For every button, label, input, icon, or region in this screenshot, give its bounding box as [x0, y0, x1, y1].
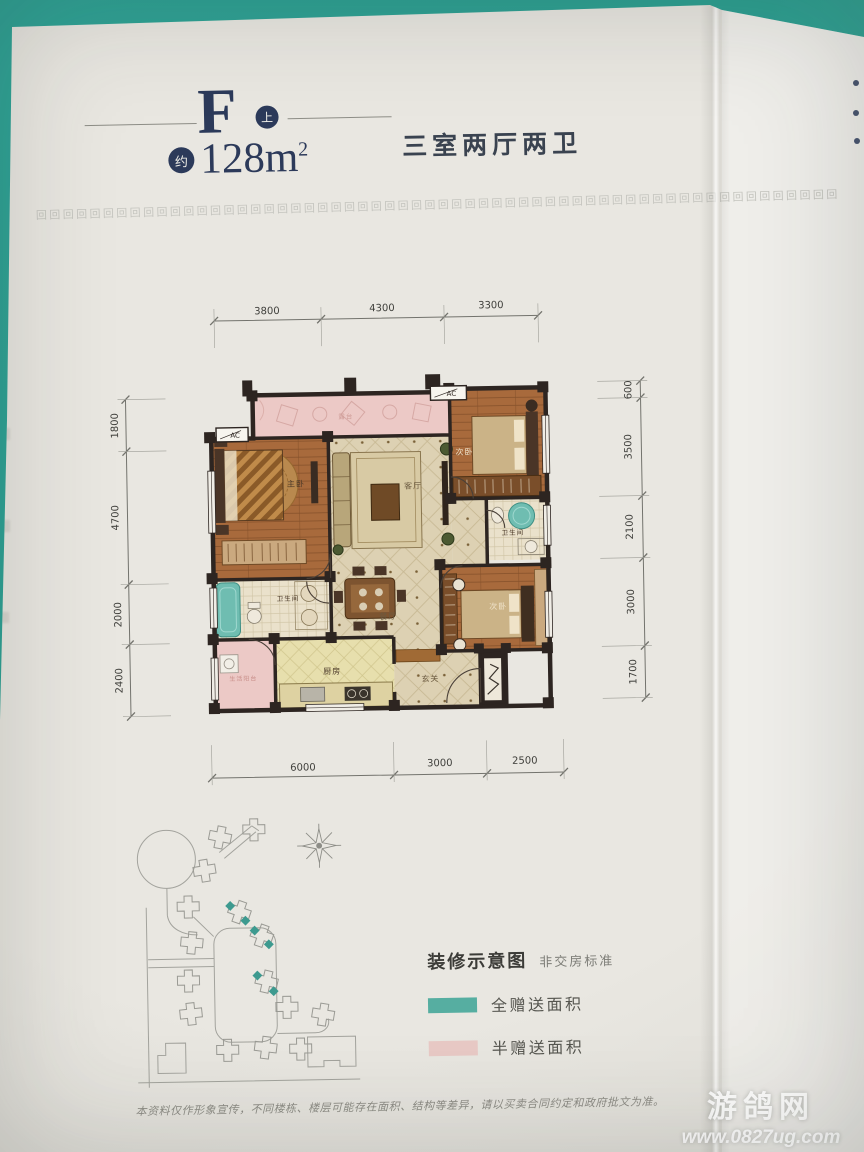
- ac-label-left: AC: [230, 432, 240, 440]
- bathtub-left: [216, 583, 241, 637]
- dim-right-3: 2100: [625, 514, 636, 540]
- disclaimer-text: 本资料仅作形象宣传，不同楼栋、楼层可能存在面积、结构等差异，请以买卖合同约定和政…: [110, 1092, 690, 1119]
- bedroom2-wardrobe: [453, 475, 541, 497]
- washer: [220, 655, 238, 673]
- floor-plan: 3800 4300 3300 6000 3000 2500 1800 4700 …: [96, 277, 685, 807]
- dim-left-1: 1800: [110, 413, 121, 439]
- unit-title-block: F 上 约 128m2 三室两厅两卫: [79, 79, 621, 199]
- dim-right-2: 3500: [623, 434, 634, 460]
- utility-balcony-area: [215, 639, 276, 711]
- page-fold: [700, 0, 730, 1152]
- area-superscript: 2: [298, 138, 308, 160]
- toilet-left: [247, 609, 261, 623]
- dim-top-3: 3300: [478, 300, 504, 311]
- edge-dot: [853, 110, 859, 116]
- dim-top-2: 4300: [369, 303, 395, 314]
- site-buildings: [175, 817, 337, 1062]
- hallway-floor: [451, 498, 487, 566]
- label-dining: 餐厅: [379, 612, 397, 621]
- coffee-table: [371, 484, 400, 520]
- label-bed-bottom-right: 次卧: [489, 601, 507, 611]
- dim-right-1: 600: [623, 380, 634, 399]
- site-roads: [134, 824, 361, 1088]
- folded-right-panel: [722, 0, 864, 1152]
- watermark: 游鸽网 www.0827ug.com: [662, 1082, 860, 1149]
- master-headboard: [214, 449, 225, 523]
- dim-left-2: 4700: [110, 505, 121, 531]
- edge-smudge: [1, 520, 10, 532]
- watermark-url: www.0827ug.com: [662, 1127, 860, 1149]
- full-gift-label: 全赠送面积: [491, 991, 584, 1017]
- toilet-right: [491, 507, 503, 523]
- area-value: 128m2: [200, 133, 309, 184]
- label-living: 客厅: [404, 480, 422, 490]
- legend-title: 装修示意图: [427, 951, 527, 973]
- roundabout: [137, 830, 196, 889]
- legend-header: 装修示意图非交房标准: [427, 944, 687, 975]
- edge-dot: [853, 80, 859, 86]
- site-plan: [124, 808, 369, 1097]
- full-gift-swatch: [428, 997, 477, 1013]
- legend: 装修示意图非交房标准 全赠送面积 半赠送面积: [427, 944, 689, 1061]
- brochure-photo: F 上 约 128m2 三室两厅两卫 回回回回回回回回回回回回回回回回回回回回回…: [0, 0, 864, 1152]
- dim-bottom-1: 6000: [290, 762, 316, 773]
- unit-layout-description: 三室两厅两卫: [402, 124, 583, 163]
- label-bath-left: 卫生间: [277, 594, 300, 603]
- master-wardrobe: [222, 539, 306, 564]
- title-rule-right: [288, 116, 392, 119]
- label-entry: 玄关: [421, 673, 439, 683]
- compass-icon: [297, 823, 342, 868]
- watermark-site-name: 游鸽网: [662, 1082, 860, 1126]
- half-gift-swatch: [429, 1040, 478, 1056]
- edge-dot: [854, 138, 860, 144]
- legend-item-full-gift: 全赠送面积: [428, 989, 688, 1018]
- legend-item-half-gift: 半赠送面积: [429, 1032, 689, 1061]
- dim-left-3: 2000: [113, 602, 124, 628]
- dim-top-1: 3800: [254, 306, 280, 317]
- unit-badge-shang: 上: [255, 105, 278, 128]
- brochure-page: F 上 约 128m2 三室两厅两卫 回回回回回回回回回回回回回回回回回回回回回…: [0, 0, 864, 1152]
- dim-bottom-2: 3000: [427, 758, 453, 769]
- area-number: 128m: [200, 134, 299, 183]
- dim-right-5: 1700: [628, 659, 639, 685]
- title-rule-left: [85, 123, 197, 126]
- dim-left-4: 2400: [114, 668, 125, 694]
- dim-right-4: 3000: [626, 589, 637, 615]
- dim-bottom-3: 2500: [512, 755, 538, 766]
- edge-smudge: [1, 428, 10, 440]
- approx-badge: 约: [168, 147, 194, 173]
- ac-label-right: AC: [447, 390, 457, 398]
- bathtub-right: [508, 502, 534, 528]
- label-master: 主卧: [287, 478, 305, 488]
- legend-subtitle: 非交房标准: [539, 953, 614, 969]
- label-bath-right: 卫生间: [502, 528, 525, 537]
- shoe-cabinet: [396, 649, 440, 662]
- edge-smudge: [1, 612, 9, 623]
- label-kitchen: 厨房: [323, 666, 341, 676]
- stove: [345, 686, 371, 700]
- label-bed-top-right: 次卧: [455, 447, 473, 457]
- sofa: [332, 453, 351, 547]
- half-gift-label: 半赠送面积: [492, 1034, 585, 1060]
- label-terrace: 露台: [338, 412, 353, 421]
